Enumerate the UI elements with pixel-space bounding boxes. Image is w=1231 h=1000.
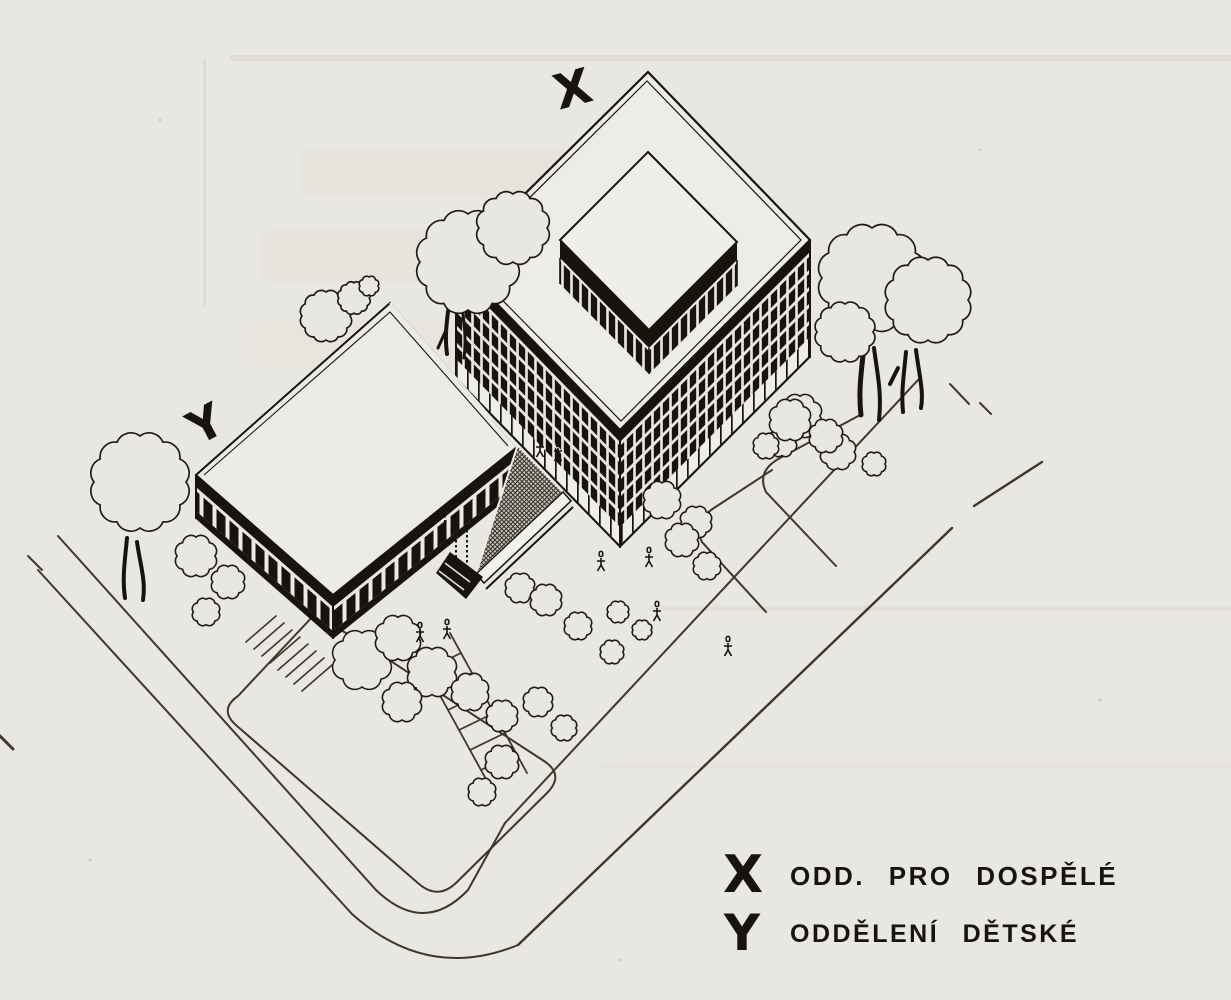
legend-symbol-x: X	[723, 845, 763, 905]
ghost-line-top	[230, 55, 1231, 61]
shrub	[753, 433, 778, 458]
shrub	[192, 598, 219, 625]
shrub	[600, 640, 624, 664]
marker-adults: X	[548, 58, 598, 122]
scanned-page: X Y X ODD. PRO DOSPĚLÉ Y ODDĚLENÍ DĚTSKÉ	[0, 0, 1231, 1000]
road-kerb-dash	[950, 384, 991, 414]
ghost-streak	[600, 764, 1231, 768]
shrub	[359, 276, 379, 296]
legend-symbol-y: Y	[723, 904, 761, 962]
forecourt-kerb	[699, 470, 772, 612]
road-kerb-dash	[0, 736, 13, 749]
shrub	[693, 552, 720, 579]
tree	[815, 302, 875, 362]
ghost-line-left	[203, 58, 206, 308]
ghost-streak	[650, 606, 1231, 611]
tree	[885, 257, 970, 342]
shrub	[564, 612, 591, 639]
road-kerb	[38, 570, 352, 914]
entrance-steps	[246, 616, 332, 691]
shrub	[551, 715, 576, 740]
shrub	[632, 620, 652, 640]
legend-item-children: Y ODDĚLENÍ DĚTSKÉ	[723, 904, 1079, 962]
shrub	[523, 687, 552, 716]
shrub	[607, 601, 629, 623]
legend-label-children: ODDĚLENÍ DĚTSKÉ	[790, 918, 1079, 948]
terrace-stairs	[436, 552, 483, 599]
shrub	[175, 535, 216, 576]
site-plan-drawing: X Y X ODD. PRO DOSPĚLÉ Y ODDĚLENÍ DĚTSKÉ	[0, 0, 1231, 1000]
road-junction-kerb	[376, 823, 505, 913]
legend-label-adults: ODD. PRO DOSPĚLÉ	[790, 861, 1118, 891]
marker-children: Y	[177, 392, 233, 456]
road-junction-kerb	[352, 914, 518, 958]
shrub	[468, 778, 495, 805]
shrub	[211, 565, 244, 598]
tree	[477, 192, 550, 265]
shrub	[862, 452, 886, 476]
road-kerb-dash	[28, 556, 42, 570]
tree	[91, 433, 189, 531]
legend: X ODD. PRO DOSPĚLÉ Y ODDĚLENÍ DĚTSKÉ	[723, 845, 1118, 962]
legend-item-adults: X ODD. PRO DOSPĚLÉ	[723, 845, 1118, 905]
shrub	[530, 584, 561, 615]
